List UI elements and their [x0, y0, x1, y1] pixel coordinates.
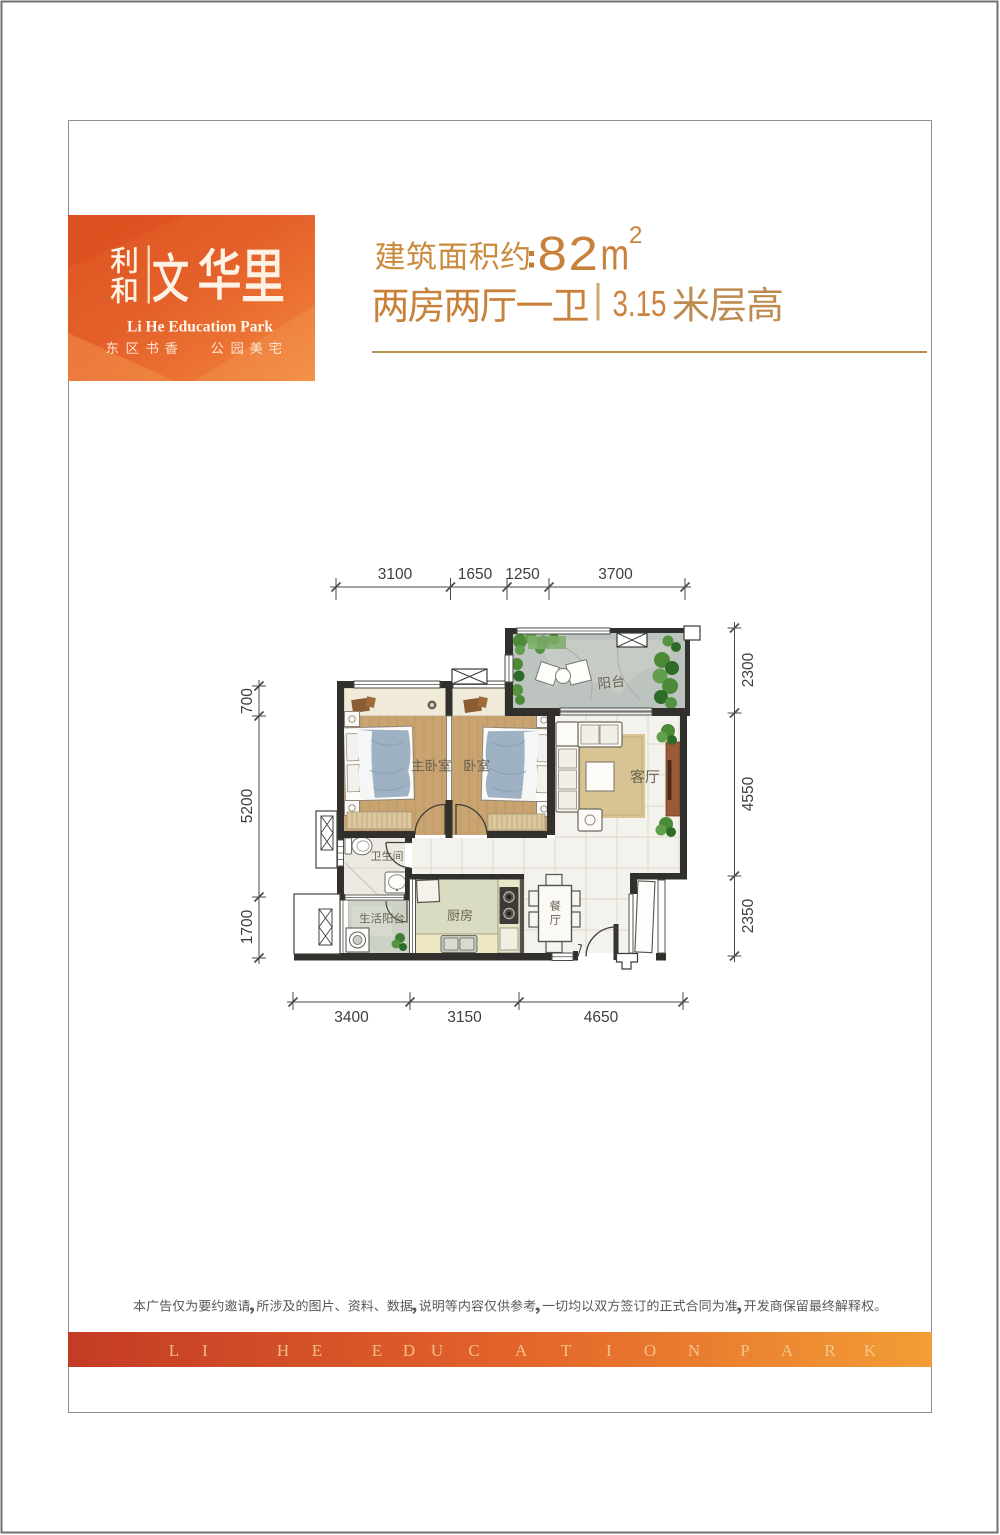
svg-text:P: P — [740, 1341, 749, 1360]
svg-text:C: C — [468, 1341, 479, 1360]
svg-text:m: m — [601, 230, 630, 279]
svg-text:1650: 1650 — [458, 566, 493, 583]
svg-text:4550: 4550 — [740, 776, 757, 811]
svg-text:3100: 3100 — [378, 566, 413, 583]
svg-text:2300: 2300 — [740, 652, 757, 687]
svg-text:I: I — [606, 1341, 612, 1360]
svg-text:I: I — [202, 1341, 208, 1360]
svg-text:4650: 4650 — [584, 1009, 619, 1026]
svg-text:2: 2 — [629, 222, 642, 249]
svg-text:O: O — [644, 1341, 656, 1360]
svg-text:3700: 3700 — [598, 566, 633, 583]
svg-text:82: 82 — [538, 226, 600, 280]
svg-text:5200: 5200 — [239, 788, 256, 823]
svg-text:E: E — [312, 1341, 322, 1360]
svg-text:A: A — [515, 1341, 528, 1360]
svg-text:N: N — [688, 1341, 700, 1360]
svg-text:700: 700 — [239, 688, 256, 714]
svg-text:E: E — [372, 1341, 382, 1360]
svg-text:3400: 3400 — [334, 1009, 369, 1026]
svg-text:R: R — [824, 1341, 836, 1360]
svg-text:1700: 1700 — [239, 909, 256, 944]
svg-text:3150: 3150 — [447, 1009, 482, 1026]
svg-text:T: T — [561, 1341, 572, 1360]
svg-text:L: L — [169, 1341, 179, 1360]
svg-text:H: H — [277, 1341, 289, 1360]
svg-text:D: D — [403, 1341, 415, 1360]
svg-text:Li He Education Park: Li He Education Park — [127, 319, 273, 336]
svg-text:K: K — [864, 1341, 877, 1360]
svg-text:A: A — [781, 1341, 794, 1360]
svg-text:1250: 1250 — [505, 566, 540, 583]
svg-text:3.15: 3.15 — [613, 283, 667, 324]
svg-text:2350: 2350 — [740, 898, 757, 933]
svg-text:U: U — [431, 1341, 443, 1360]
